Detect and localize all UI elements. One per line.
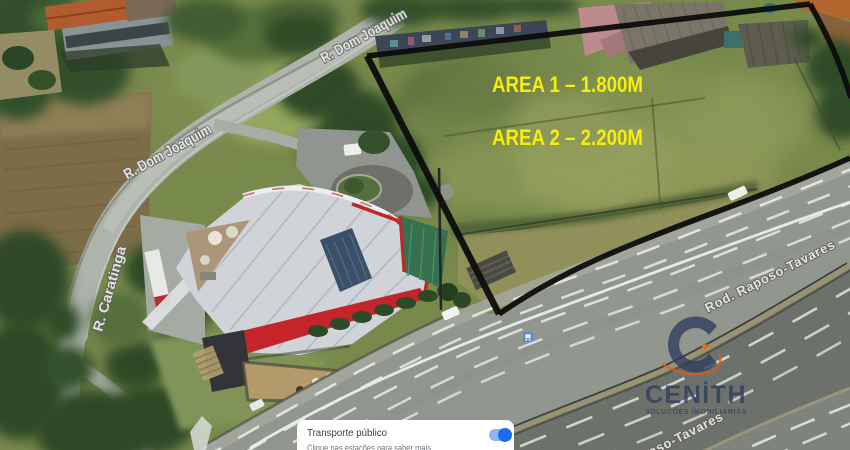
svg-text:AREA 2 – 2.200M: AREA 2 – 2.200M [492,125,643,150]
svg-text:AREA 1 – 1.800M: AREA 1 – 1.800M [492,72,643,97]
svg-text:Transporte público: Transporte público [307,427,387,439]
svg-text:CENİTH: CENİTH [645,381,747,409]
svg-text:SOLUÇÕES IMOBILIÁRIAS: SOLUÇÕES IMOBILIÁRIAS [645,407,747,416]
svg-text:Clique nas estações para saber: Clique nas estações para saber mais [307,443,431,450]
